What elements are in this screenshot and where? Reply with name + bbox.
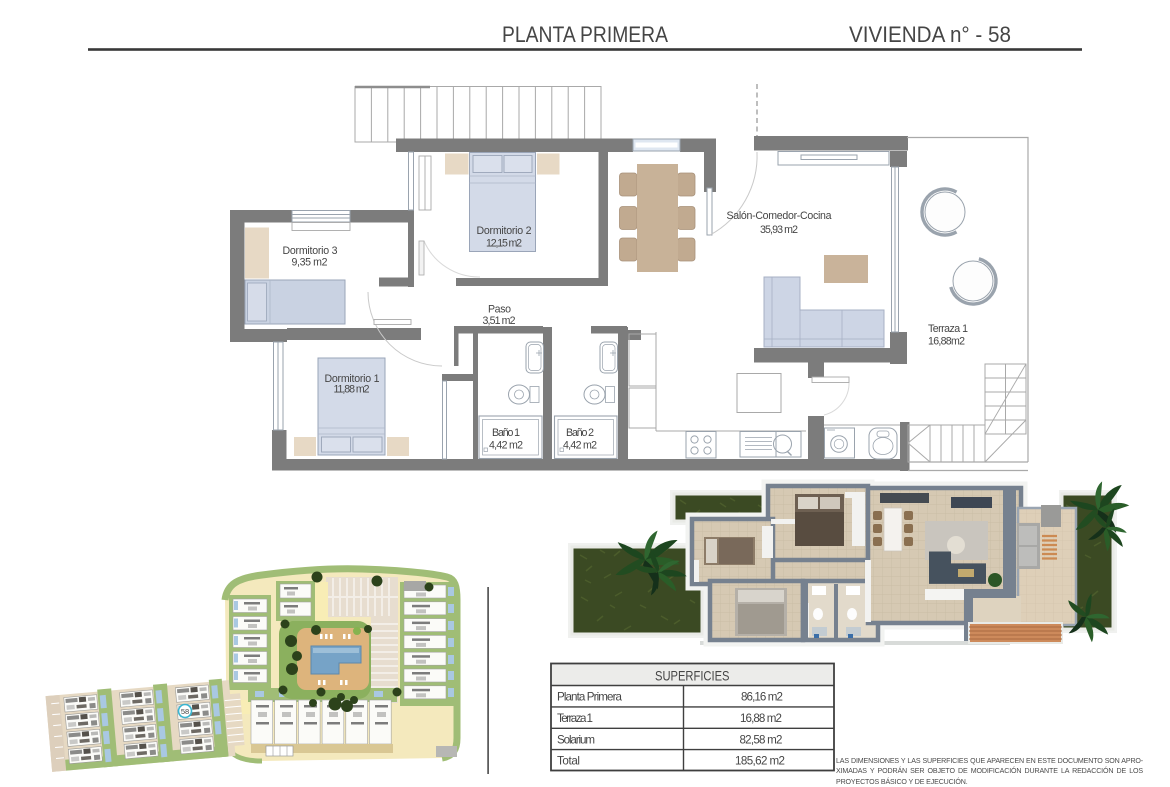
svg-text:Dormitorio 2: Dormitorio 2 xyxy=(477,225,532,237)
svg-text:16,88m2: 16,88m2 xyxy=(928,336,965,348)
svg-text:Salón-Comedor-Cocina: Salón-Comedor-Cocina xyxy=(727,210,832,222)
svg-text:VIVIENDA n° - 58: VIVIENDA n° - 58 xyxy=(849,22,1011,47)
svg-text:SUPERFICIES: SUPERFICIES xyxy=(655,668,730,684)
svg-text:4,42 m2: 4,42 m2 xyxy=(563,439,597,451)
svg-text:Terraza 1: Terraza 1 xyxy=(557,712,593,725)
svg-text:86,16 m2: 86,16 m2 xyxy=(741,691,783,704)
svg-text:35,93 m2: 35,93 m2 xyxy=(760,224,798,236)
svg-text:58: 58 xyxy=(181,707,189,716)
svg-text:Baño 2: Baño 2 xyxy=(566,427,594,439)
svg-text:82,58 m2: 82,58 m2 xyxy=(740,734,783,747)
svg-text:Terraza 1: Terraza 1 xyxy=(928,323,968,335)
svg-text:9,35 m2: 9,35 m2 xyxy=(292,257,328,269)
svg-text:185,62 m2: 185,62 m2 xyxy=(735,755,785,768)
svg-text:4,42 m2: 4,42 m2 xyxy=(489,439,523,451)
svg-text:16,88 m2: 16,88 m2 xyxy=(740,712,782,725)
svg-text:Total: Total xyxy=(557,755,580,768)
svg-text:11,88 m2: 11,88 m2 xyxy=(334,384,370,396)
svg-text:Solarium: Solarium xyxy=(557,734,595,747)
svg-text:Baño 1: Baño 1 xyxy=(492,427,520,439)
svg-text:Paso: Paso xyxy=(488,303,511,315)
svg-text:Dormitorio 3: Dormitorio 3 xyxy=(283,245,338,257)
svg-text:3,51 m2: 3,51 m2 xyxy=(483,315,516,327)
svg-text:12,15 m2: 12,15 m2 xyxy=(486,237,522,249)
svg-text:PLANTA PRIMERA: PLANTA PRIMERA xyxy=(502,22,668,47)
svg-text:Planta Primera: Planta Primera xyxy=(557,691,623,704)
